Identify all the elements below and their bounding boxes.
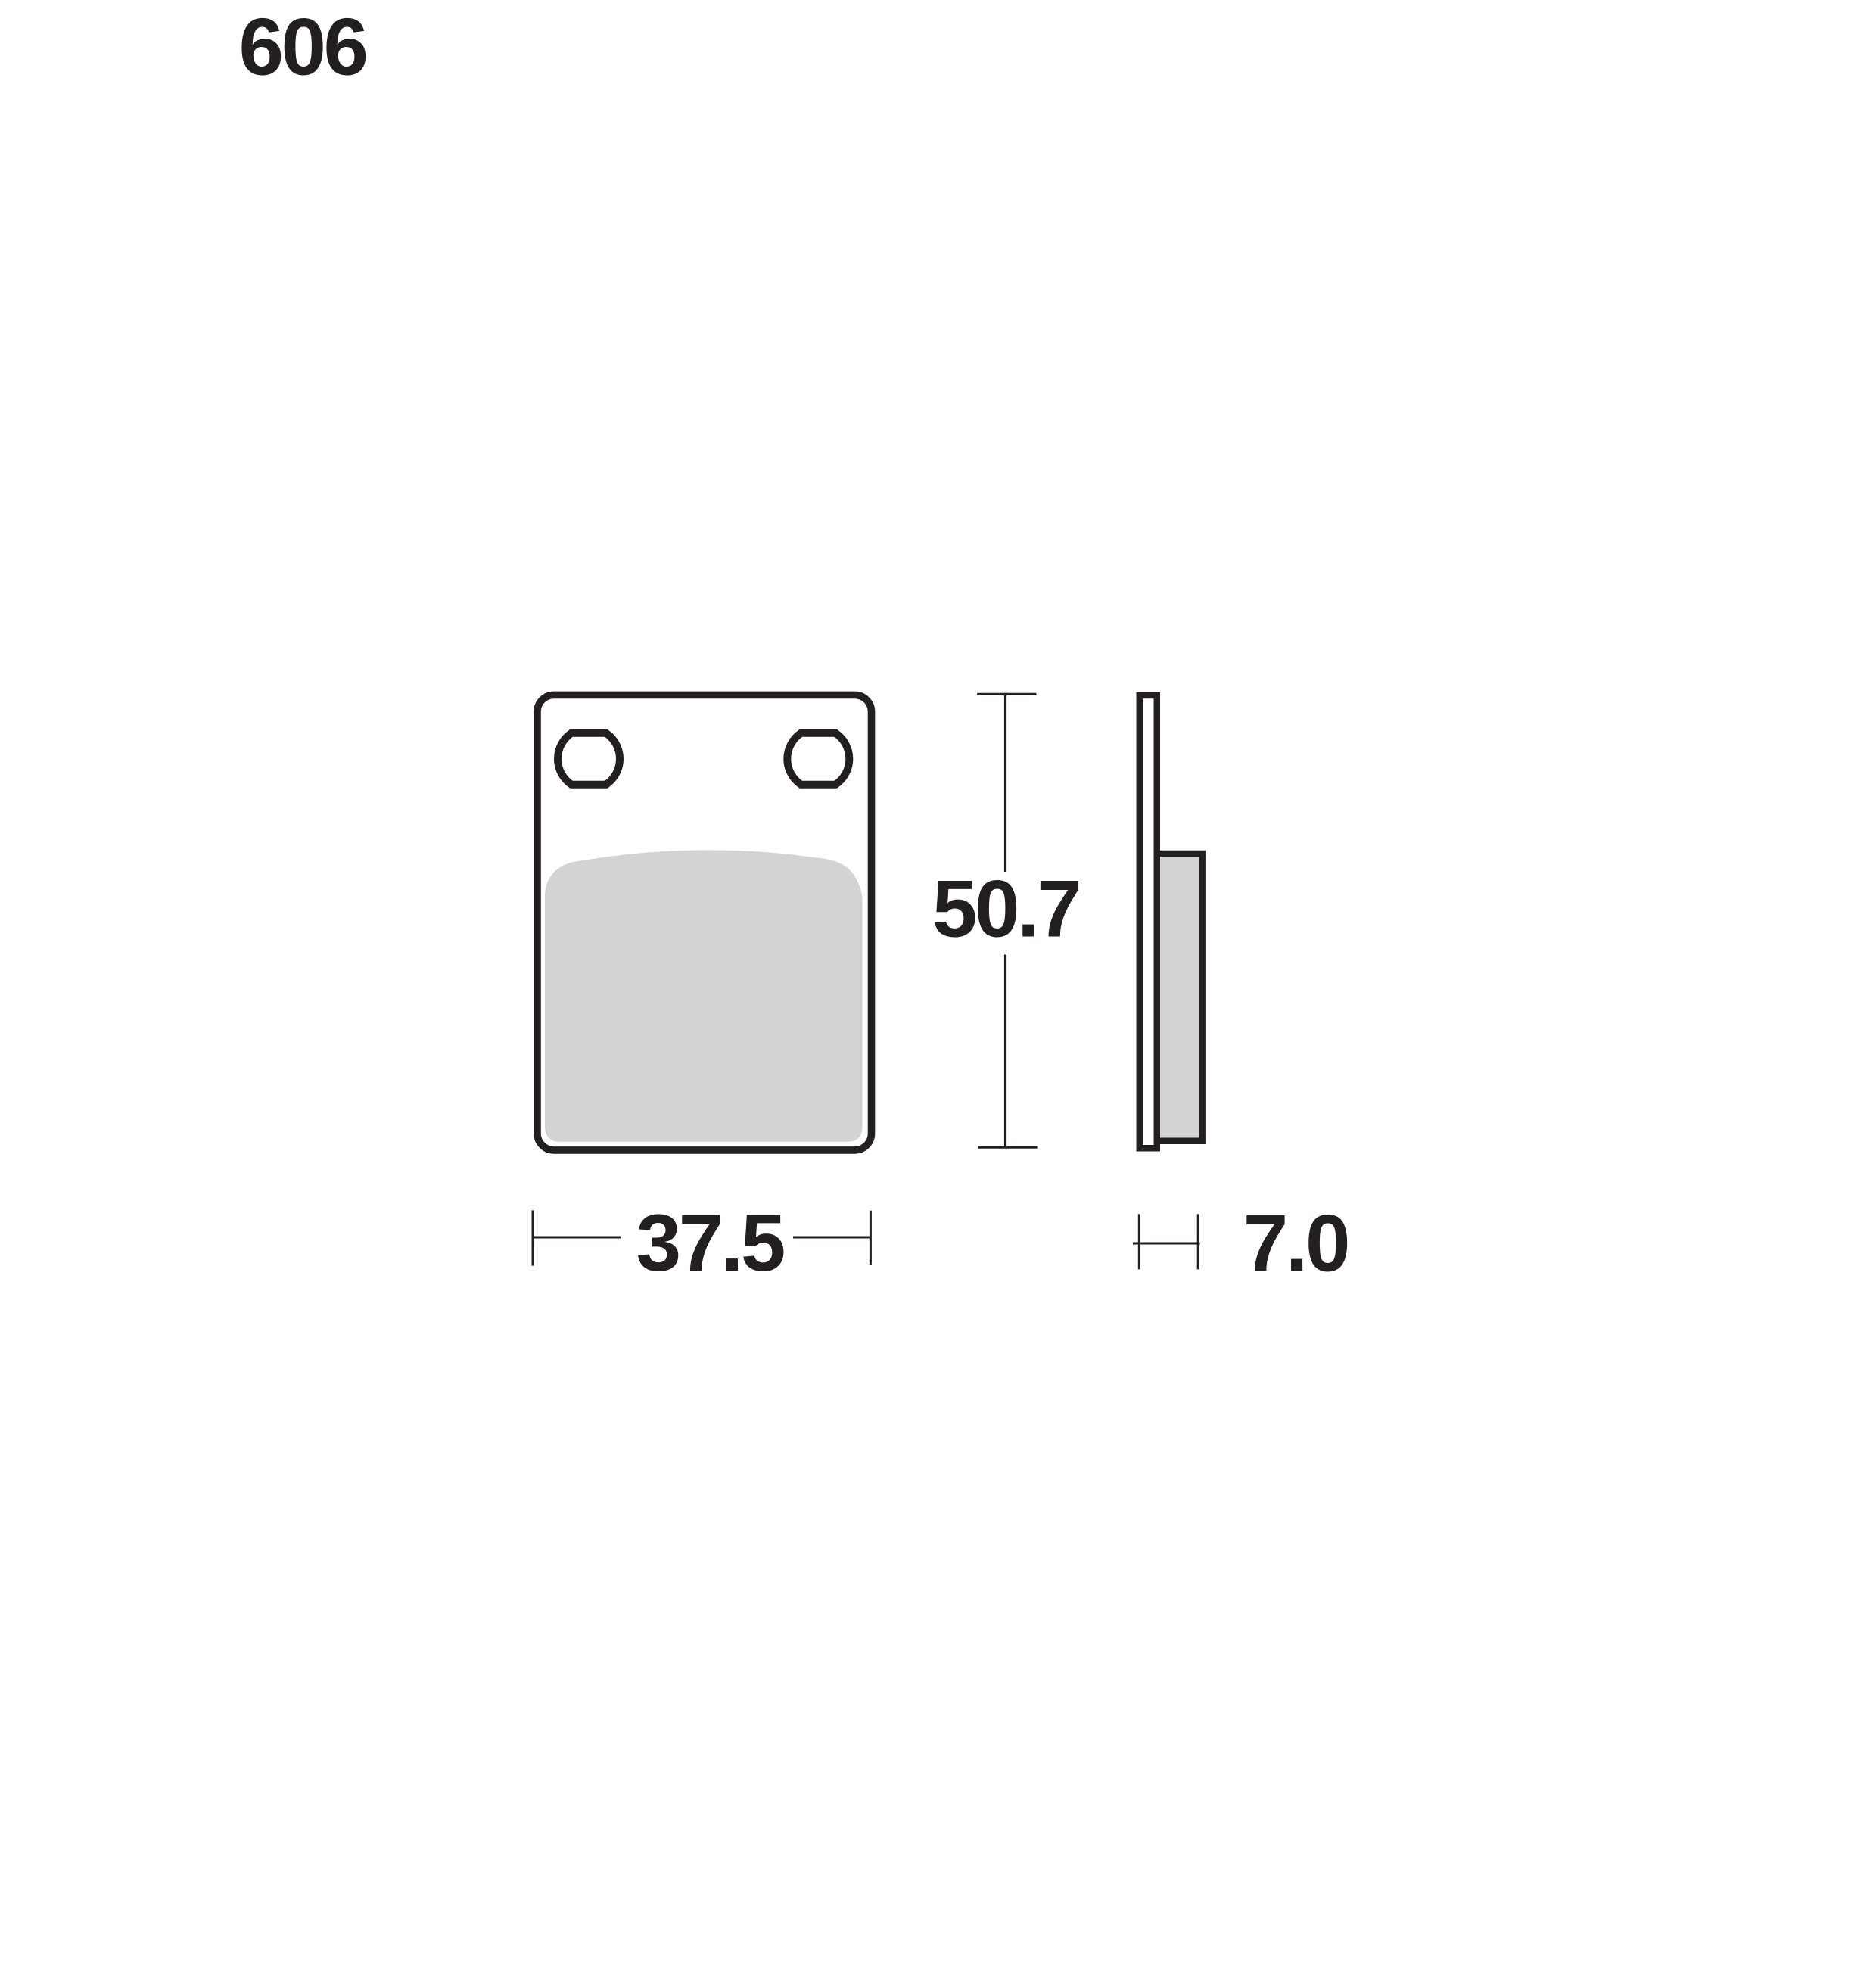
svg-text:606: 606 bbox=[238, 1, 366, 92]
svg-text:50.7: 50.7 bbox=[932, 863, 1079, 954]
svg-text:37.5: 37.5 bbox=[636, 1197, 784, 1288]
svg-text:7.0: 7.0 bbox=[1243, 1198, 1348, 1289]
